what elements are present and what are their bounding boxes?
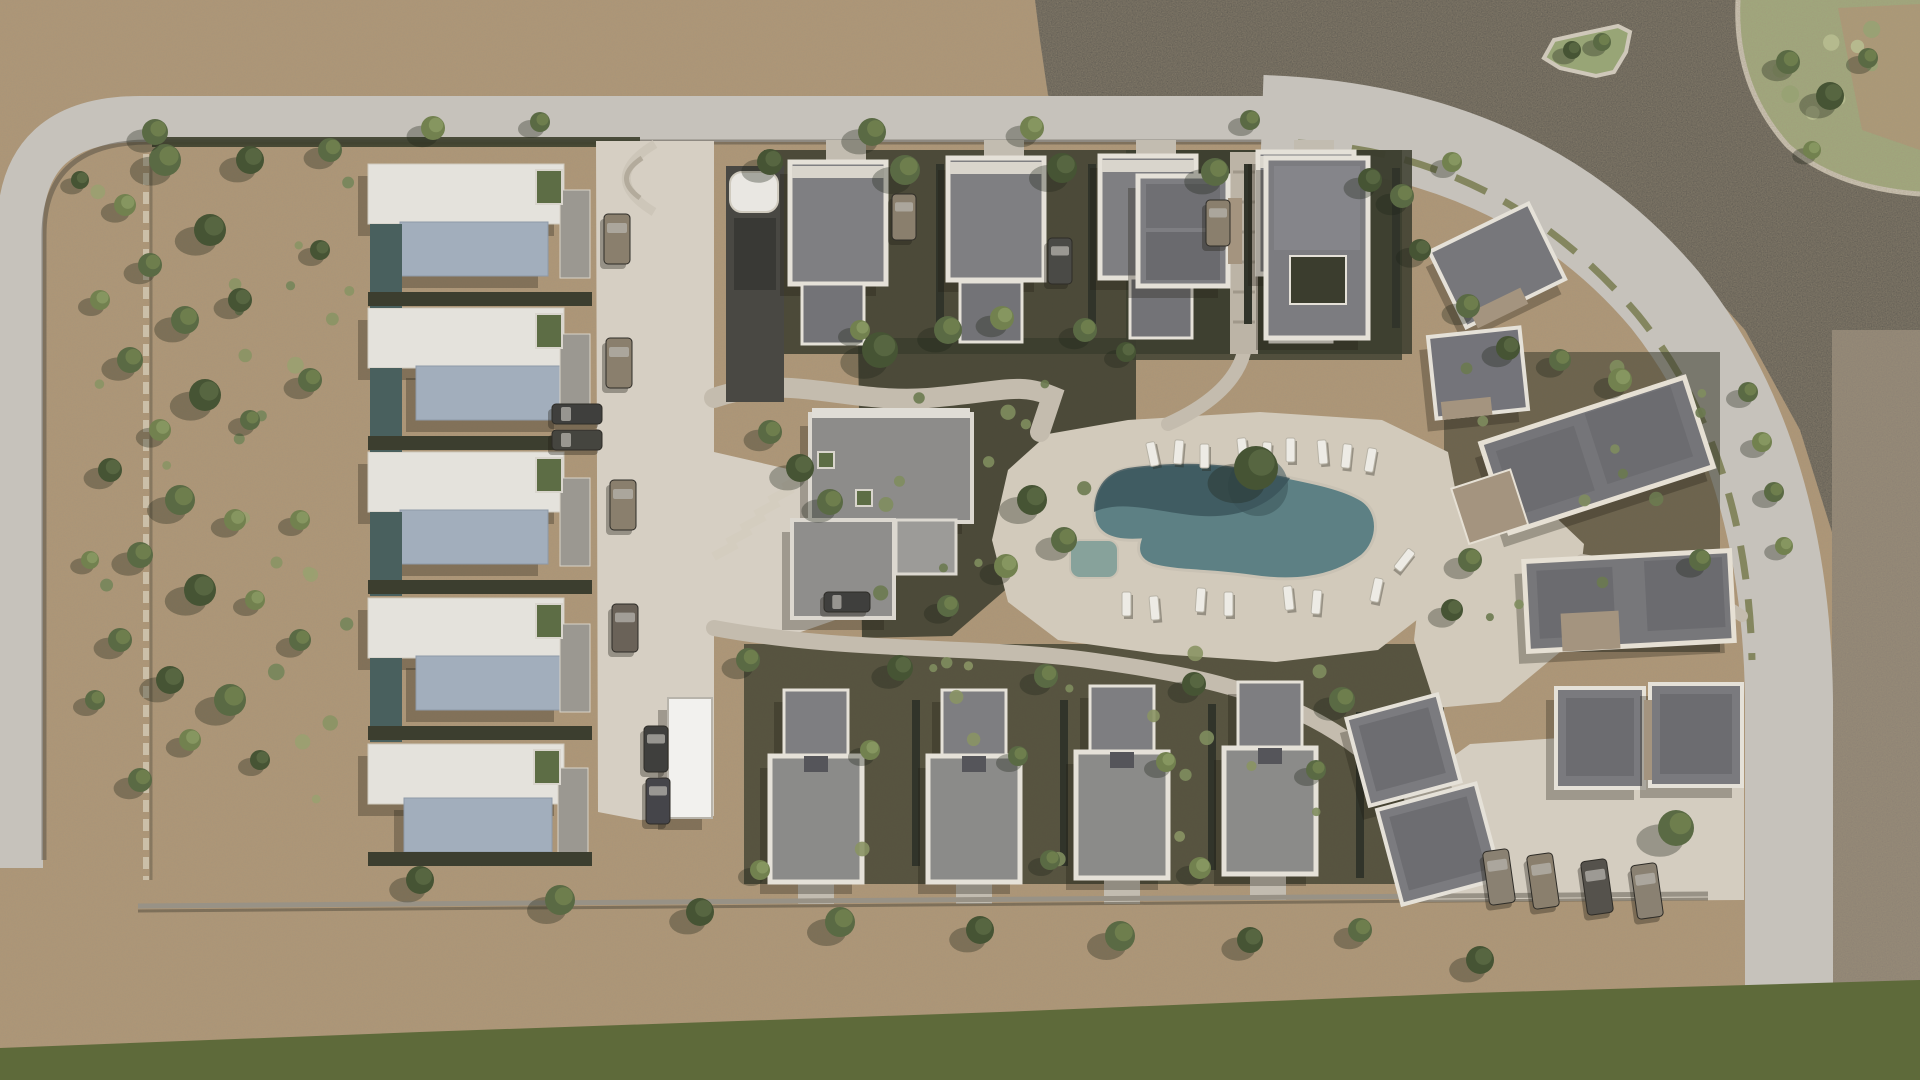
parked-car — [1048, 238, 1072, 284]
tree-highlight — [1781, 538, 1792, 549]
east-bed-shrubs — [1695, 407, 1706, 418]
tree-highlight — [415, 868, 432, 885]
corner-grass-shrubs — [1823, 34, 1839, 50]
south-bed-shrubs — [1199, 730, 1214, 745]
west-field-shrubs — [100, 579, 113, 592]
villa-glass-roof — [400, 510, 548, 564]
south-bed-shrubs — [1313, 664, 1327, 678]
central-bed-shrubs — [879, 497, 894, 512]
guest-trailer — [668, 698, 712, 818]
parked-car — [646, 778, 670, 824]
tree-highlight — [97, 292, 109, 304]
villa-glass-roof — [400, 222, 548, 276]
tree-highlight — [1696, 551, 1709, 564]
tree-highlight — [92, 692, 104, 704]
villa-side-volume — [558, 768, 588, 856]
tree-highlight — [77, 172, 88, 183]
tree-highlight — [1247, 112, 1259, 124]
parked-car-windshield — [609, 347, 629, 357]
tree-highlight — [695, 900, 712, 917]
tree-highlight — [1059, 529, 1075, 545]
south-house-door-box — [1110, 752, 1134, 768]
parked-car-windshield — [647, 734, 665, 743]
tree-highlight — [874, 335, 896, 357]
tree-highlight — [1398, 186, 1412, 200]
clubhouse-planter — [856, 490, 872, 506]
east-bed-shrubs — [1610, 444, 1620, 454]
sun-lounger — [1283, 586, 1294, 611]
east-duplex-lower-deck — [1561, 611, 1621, 652]
tree-highlight — [1809, 142, 1820, 153]
villa-slab — [368, 598, 564, 658]
west-field-shrubs — [268, 664, 285, 681]
south-bed-shrubs — [1179, 769, 1191, 781]
central-bed-shrubs — [1077, 481, 1091, 495]
south-house-frame — [770, 756, 862, 882]
tree-highlight — [159, 146, 178, 165]
tree-highlight — [1196, 859, 1209, 872]
south-house-annex — [1090, 686, 1154, 754]
south-house-door-box — [804, 756, 828, 772]
tree-highlight — [194, 576, 213, 595]
south-bed-shrubs — [929, 664, 937, 672]
parked-car-windshield — [561, 433, 571, 447]
tree-highlight — [895, 657, 911, 673]
south-house-frame — [928, 756, 1020, 882]
south-bed-shrubs — [1174, 831, 1185, 842]
tree-highlight — [1190, 674, 1204, 688]
tree-highlight — [835, 909, 853, 927]
west-field-shrubs — [344, 286, 354, 296]
clubhouse-planter — [818, 452, 834, 468]
west-field-shrubs — [90, 184, 105, 199]
tree-highlight — [1245, 929, 1261, 945]
tree-highlight — [257, 752, 269, 764]
sun-lounger — [1317, 440, 1328, 465]
tree-highlight — [1670, 813, 1692, 835]
west-field-shrubs — [95, 379, 105, 389]
tree-highlight — [1569, 42, 1580, 53]
south-house-frame — [1224, 748, 1316, 874]
sun-lounger — [1341, 444, 1352, 469]
west-field-shrubs — [239, 349, 252, 362]
sun-lounger — [1122, 592, 1131, 616]
tree-highlight — [1366, 170, 1380, 184]
parked-car — [552, 404, 602, 424]
tree-highlight — [1466, 550, 1480, 564]
villa-roof-planter — [534, 750, 560, 784]
south-bed-shrubs — [1246, 761, 1256, 771]
tree-highlight — [297, 512, 309, 524]
tree-highlight — [766, 422, 780, 436]
tree-highlight — [125, 349, 141, 365]
north-court-inset — [734, 218, 776, 290]
tree-highlight — [1047, 852, 1059, 864]
south-bed-shrubs — [1188, 646, 1204, 662]
villa-hedge-gap — [368, 726, 592, 740]
central-bed-shrubs — [1041, 380, 1050, 389]
west-field-shrubs — [340, 617, 353, 630]
tree-highlight — [156, 421, 169, 434]
parked-car — [606, 338, 632, 388]
east-house-b-roof — [1274, 166, 1360, 250]
south-bed-shrubs — [855, 842, 870, 857]
west-field-shrubs — [287, 357, 304, 374]
tree-highlight — [429, 118, 443, 132]
villa-roof-planter — [536, 170, 562, 204]
east-bed-shrubs — [1461, 362, 1473, 374]
central-bed-shrubs — [913, 392, 924, 403]
tree-highlight — [146, 255, 160, 269]
tree-highlight — [1163, 754, 1175, 766]
south-bed-shrubs — [1312, 808, 1321, 817]
se-house-roof-a — [1566, 698, 1634, 776]
tree-highlight — [867, 120, 884, 137]
sun-lounger — [1311, 590, 1322, 615]
villa-glass-roof — [416, 656, 564, 710]
south-house-annex — [1238, 682, 1302, 750]
se-house-roof-b — [1660, 694, 1732, 774]
south-house-door-box — [962, 756, 986, 772]
sun-lounger — [1173, 440, 1184, 465]
parked-car — [610, 480, 636, 530]
east-bed-shrubs — [1477, 416, 1488, 427]
central-bed-shrubs — [1021, 419, 1031, 429]
parked-car-windshield — [649, 786, 667, 795]
tree-highlight — [1248, 449, 1274, 475]
east-bed-shrubs — [1618, 469, 1628, 479]
central-bed-shrubs — [894, 476, 905, 487]
tree-highlight — [135, 544, 151, 560]
parked-car-windshield — [895, 202, 913, 211]
parked-car — [552, 430, 602, 450]
tree-highlight — [1027, 487, 1045, 505]
se-house-deck-strip — [1644, 700, 1652, 780]
sun-lounger — [1286, 438, 1295, 462]
central-bed-shrubs — [939, 563, 948, 572]
tree-highlight — [825, 491, 841, 507]
villa-side-volume — [560, 190, 590, 278]
tree-highlight — [1448, 601, 1461, 614]
villa-roof-planter — [536, 458, 562, 492]
east-bed-shrubs — [1697, 389, 1706, 398]
scene-root — [0, 0, 1920, 1080]
west-field-shrubs — [312, 795, 321, 804]
villa-roof-planter — [536, 314, 562, 348]
villa-slab — [368, 164, 564, 224]
tree-highlight — [296, 631, 309, 644]
tree-highlight — [326, 140, 340, 154]
tree-highlight — [1475, 948, 1492, 965]
parked-car-windshield — [615, 613, 635, 623]
tree-highlight — [1745, 384, 1757, 396]
parked-car — [1206, 200, 1230, 246]
parked-car-windshield — [1051, 246, 1069, 255]
tree-highlight — [867, 742, 879, 754]
north-house-parapet — [792, 166, 884, 178]
corner-grass-shrubs — [1781, 85, 1799, 103]
north-house-parapet — [1102, 160, 1194, 172]
west-field-shrubs — [342, 177, 354, 189]
south-house-door-box — [1258, 748, 1282, 764]
east-bed-shrubs — [1514, 600, 1524, 610]
villa-side-volume — [560, 478, 590, 566]
tree-highlight — [795, 456, 812, 473]
tree-highlight — [175, 487, 193, 505]
central-bed-shrubs — [873, 585, 888, 600]
parked-car-windshield — [613, 489, 633, 499]
kids-pool — [1070, 540, 1118, 578]
tree-highlight — [116, 630, 130, 644]
tree-highlight — [765, 151, 781, 167]
tree-highlight — [1416, 241, 1429, 254]
parked-car — [604, 214, 630, 264]
aerial-render-stage — [0, 0, 1920, 1080]
south-bed-shrubs — [949, 690, 963, 704]
south-bed-shrubs — [964, 661, 973, 670]
tree-highlight — [1337, 689, 1353, 705]
tree-highlight — [1784, 52, 1798, 66]
tree-highlight — [1210, 160, 1227, 177]
clubhouse-parapet — [812, 408, 970, 418]
north-house-frame — [790, 162, 886, 284]
villa-side-volume — [560, 624, 590, 712]
tree-highlight — [1759, 434, 1771, 446]
tree-highlight — [224, 686, 243, 705]
central-bed-shrubs — [1000, 405, 1015, 420]
tree-highlight — [975, 918, 992, 935]
sun-lounger — [1224, 592, 1233, 616]
west-field-shrubs — [295, 241, 303, 249]
villa-hedge-gap — [368, 292, 592, 306]
sun-lounger — [1149, 596, 1160, 621]
east-bed-shrubs — [1579, 494, 1591, 506]
tree-highlight — [1313, 762, 1325, 774]
tree-highlight — [1081, 320, 1095, 334]
tree-highlight — [1356, 920, 1370, 934]
tree-highlight — [1002, 556, 1016, 570]
tree-highlight — [199, 381, 218, 400]
tree-highlight — [204, 216, 223, 235]
tree-highlight — [317, 242, 329, 254]
tree-highlight — [180, 308, 197, 325]
villa-hedge-gap — [368, 580, 592, 594]
sun-lounger — [1195, 588, 1206, 613]
south-bed-shrubs — [1147, 710, 1160, 723]
tree-highlight — [537, 114, 549, 126]
tree-highlight — [231, 511, 244, 524]
west-field-shrubs — [162, 461, 171, 470]
villa-slab — [368, 452, 564, 512]
parked-car-windshield — [832, 595, 841, 609]
tree-highlight — [306, 370, 320, 384]
west-field-shrubs — [271, 557, 283, 569]
tree-highlight — [150, 121, 166, 137]
west-field-shrubs — [295, 734, 310, 749]
tree-highlight — [943, 318, 960, 335]
villa-hedge-gap — [368, 852, 592, 866]
tree-highlight — [1556, 351, 1569, 364]
tree-highlight — [1464, 296, 1478, 310]
tree-highlight — [186, 731, 199, 744]
tree-highlight — [744, 650, 758, 664]
tree-highlight — [944, 597, 957, 610]
tree-highlight — [252, 592, 264, 604]
tree-highlight — [1504, 338, 1518, 352]
tree-highlight — [1042, 666, 1056, 680]
parked-car — [644, 726, 668, 772]
parked-car — [892, 194, 916, 240]
tree-highlight — [106, 460, 120, 474]
tree-highlight — [857, 322, 869, 334]
tree-highlight — [247, 412, 259, 424]
parked-car — [612, 604, 638, 652]
south-house-annex — [784, 690, 848, 758]
tree-highlight — [245, 148, 262, 165]
villa-glass-roof — [404, 798, 552, 852]
west-field-shrubs — [323, 715, 338, 730]
north-hedge-strip — [152, 137, 640, 147]
tree-highlight — [1015, 748, 1027, 760]
corner-grass-shrubs — [1863, 21, 1880, 38]
central-bed-shrubs — [983, 456, 994, 467]
parked-car-windshield — [1209, 208, 1227, 217]
site-plan-aerial-render — [0, 0, 1920, 1080]
villa-slab — [368, 308, 564, 368]
west-field-shrubs — [326, 313, 339, 326]
tree-highlight — [1449, 154, 1461, 166]
tree-highlight — [555, 887, 573, 905]
tree-highlight — [1825, 84, 1842, 101]
tree-highlight — [1616, 370, 1630, 384]
south-bed-shrubs — [967, 733, 980, 746]
east-bed-shrubs — [1486, 613, 1494, 621]
tree-highlight — [87, 552, 98, 563]
tree-highlight — [1028, 118, 1042, 132]
tree-highlight — [136, 770, 150, 784]
tree-highlight — [1123, 344, 1135, 356]
south-bed-shrubs — [941, 657, 952, 668]
parked-car-windshield — [561, 407, 571, 421]
parked-car-windshield — [607, 223, 627, 233]
east-bed-shrubs — [1649, 492, 1663, 506]
tree-highlight — [998, 308, 1012, 322]
tree-highlight — [1865, 50, 1877, 62]
sun-lounger — [1200, 444, 1209, 468]
tree-highlight — [900, 157, 918, 175]
central-bed-shrubs — [974, 559, 982, 567]
west-field-shrubs — [286, 281, 295, 290]
villa-glass-roof — [416, 366, 564, 420]
tree-highlight — [1771, 484, 1783, 496]
north-house-parapet — [950, 162, 1042, 174]
tree-highlight — [1115, 923, 1133, 941]
tree-highlight — [236, 290, 250, 304]
south-bed-shrubs — [1065, 684, 1073, 692]
east-bed-shrubs — [1597, 577, 1609, 589]
tree-highlight — [1599, 34, 1610, 45]
tree-highlight — [121, 196, 134, 209]
villa-roof-planter — [536, 604, 562, 638]
east-house-b-court — [1290, 256, 1346, 304]
west-field-shrubs — [304, 568, 318, 582]
parked-car — [824, 592, 870, 612]
tree-highlight — [1057, 155, 1075, 173]
tree-highlight — [757, 862, 769, 874]
tree-highlight — [165, 668, 182, 685]
